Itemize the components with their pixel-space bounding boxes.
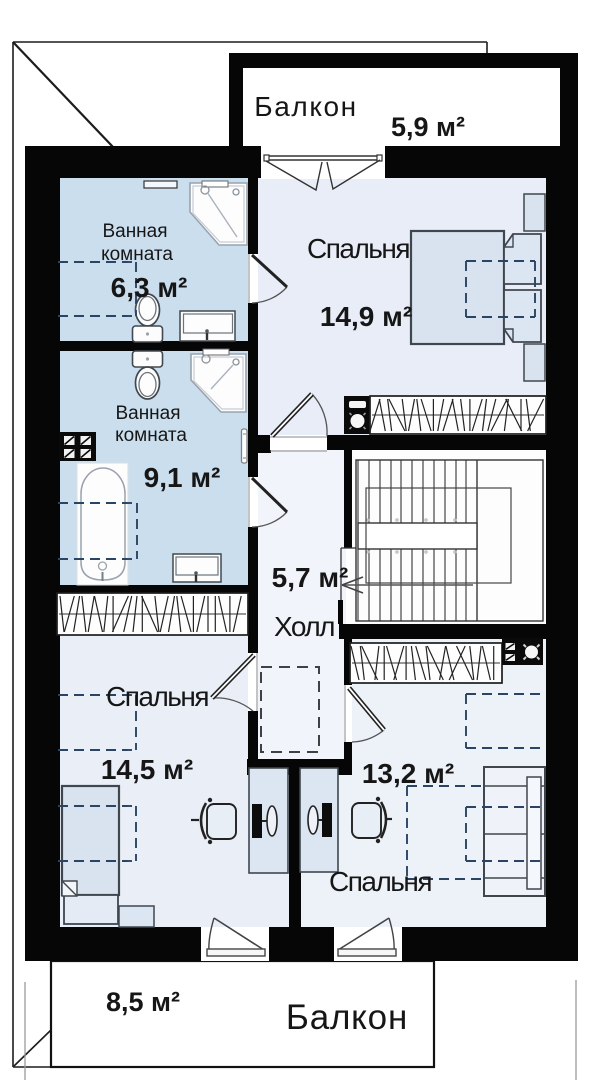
svg-text:Балкон: Балкон — [254, 91, 358, 122]
svg-text:14,9 м²: 14,9 м² — [320, 301, 412, 332]
svg-text:14,5 м²: 14,5 м² — [101, 754, 193, 785]
svg-text:Спальня: Спальня — [307, 233, 409, 264]
svg-text:Ванная: Ванная — [102, 221, 167, 242]
svg-text:Ванная: Ванная — [115, 403, 180, 424]
svg-text:6,3 м²: 6,3 м² — [111, 272, 188, 303]
svg-text:комната: комната — [101, 244, 173, 265]
svg-text:8,5 м²: 8,5 м² — [106, 987, 180, 1017]
svg-text:Спальня: Спальня — [106, 681, 208, 712]
svg-text:Балкон: Балкон — [286, 998, 408, 1037]
svg-text:5,9 м²: 5,9 м² — [391, 112, 465, 142]
svg-text:5,7 м²: 5,7 м² — [272, 562, 349, 593]
svg-text:13,2 м²: 13,2 м² — [362, 758, 454, 789]
svg-text:9,1 м²: 9,1 м² — [144, 462, 221, 493]
svg-text:комната: комната — [115, 425, 187, 446]
svg-text:Холл: Холл — [274, 611, 334, 642]
svg-text:Спальня: Спальня — [329, 866, 431, 897]
